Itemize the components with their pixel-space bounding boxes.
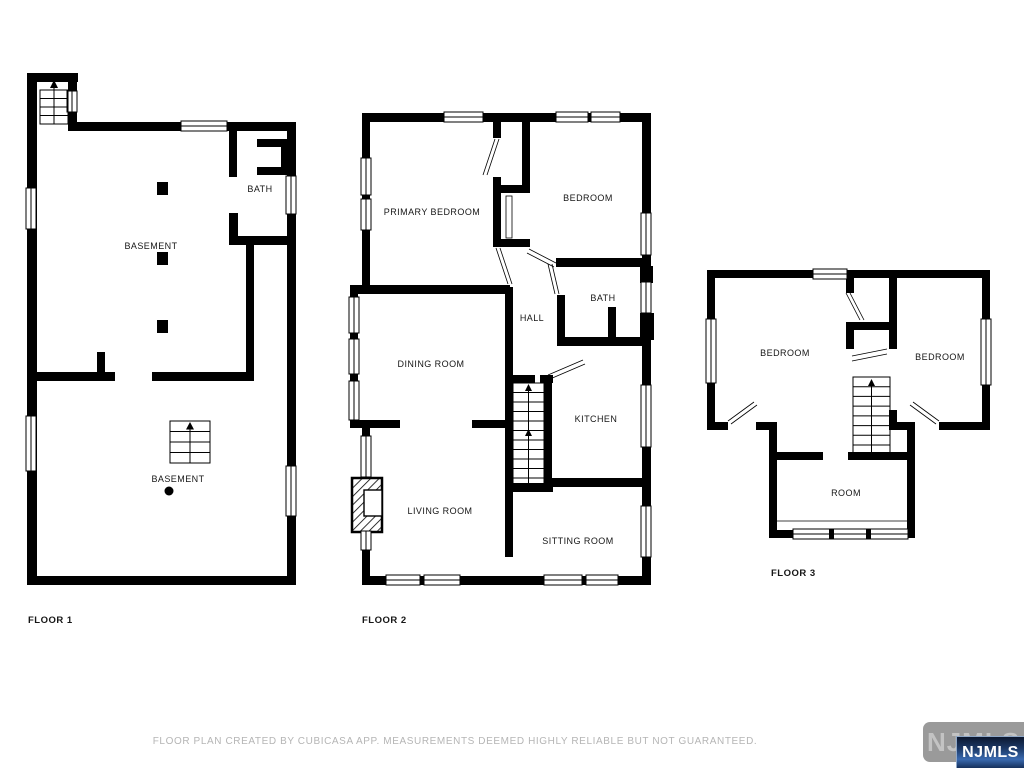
disclaimer-text: FLOOR PLAN CREATED BY CUBICASA APP. MEAS… — [0, 736, 910, 747]
room-label-sitting-room: SITTING ROOM — [542, 536, 613, 546]
window — [361, 436, 371, 477]
up-arrow-icon — [186, 422, 194, 430]
window — [26, 188, 36, 229]
window — [286, 176, 296, 214]
room-label-basement-lower: BASEMENT — [151, 474, 204, 484]
window — [349, 297, 359, 333]
floor-3-windows — [706, 269, 991, 539]
window — [641, 506, 651, 557]
window — [641, 385, 651, 447]
fireplace — [352, 478, 382, 532]
window — [641, 213, 651, 255]
floor-1-plan: BASEMENT BATH BASEMENT FLOOR 1 — [26, 73, 296, 626]
window — [544, 575, 582, 585]
window — [361, 199, 371, 230]
floor-1-label: FLOOR 1 — [28, 615, 73, 626]
room-label-bedroom-right: BEDROOM — [915, 352, 965, 362]
window — [349, 339, 359, 374]
floor-marker-dot — [165, 487, 174, 496]
window — [286, 466, 296, 516]
floor-2-plan: PRIMARY BEDROOM BEDROOM BATH HALL DINING… — [349, 112, 654, 626]
room-label-living-room: LIVING ROOM — [408, 506, 473, 516]
support-post — [157, 252, 168, 265]
up-arrow-icon — [525, 384, 532, 391]
support-post — [157, 320, 168, 333]
floor-plan-page: { "floors": { "floor1": { "label": "FLOO… — [0, 0, 1024, 768]
room-label-room: ROOM — [831, 488, 861, 498]
room-label-bath-f2: BATH — [590, 293, 615, 303]
floor-plan-drawing: BASEMENT BATH BASEMENT FLOOR 1 — [0, 0, 1024, 768]
floor-3-label: FLOOR 3 — [771, 568, 816, 579]
support-post — [157, 182, 168, 195]
stairs-up-icon — [170, 421, 210, 463]
floor-1-walls — [27, 73, 296, 585]
room-label-dining-room: DINING ROOM — [398, 359, 465, 369]
floor-3-plan: BEDROOM BEDROOM ROOM FLOOR 3 — [706, 269, 991, 579]
shower-fixture — [257, 139, 289, 175]
window — [361, 158, 371, 195]
window — [981, 319, 991, 385]
window — [586, 575, 618, 585]
room-label-primary-bedroom: PRIMARY BEDROOM — [384, 207, 480, 217]
floor-2-label: FLOOR 2 — [362, 615, 407, 626]
stairs-up-icon — [853, 377, 890, 455]
room-label-bedroom-left: BEDROOM — [760, 348, 810, 358]
window — [349, 381, 359, 420]
window — [591, 112, 620, 122]
njmls-logo-text: NJMLS — [962, 744, 1019, 762]
stairs-up-icon — [513, 383, 544, 487]
window — [386, 575, 420, 585]
room-label-bath-f1: BATH — [247, 184, 272, 194]
up-arrow-icon — [868, 379, 875, 386]
window — [424, 575, 460, 585]
window — [706, 319, 716, 383]
floor-1-windows — [26, 91, 296, 516]
room-label-bedroom-f2: BEDROOM — [563, 193, 613, 203]
window — [26, 416, 36, 471]
room-label-hall: HALL — [520, 313, 544, 323]
window — [444, 112, 483, 122]
floor-2-walls — [350, 113, 654, 585]
stairs-up-icon — [40, 80, 68, 124]
room-label-basement-upper: BASEMENT — [124, 241, 177, 251]
window — [641, 282, 651, 313]
window — [813, 269, 847, 279]
window — [793, 529, 908, 539]
window — [181, 121, 227, 131]
window — [361, 531, 371, 550]
room-label-kitchen: KITCHEN — [575, 414, 618, 424]
njmls-logo: NJMLS — [956, 736, 1024, 768]
window — [556, 112, 588, 122]
